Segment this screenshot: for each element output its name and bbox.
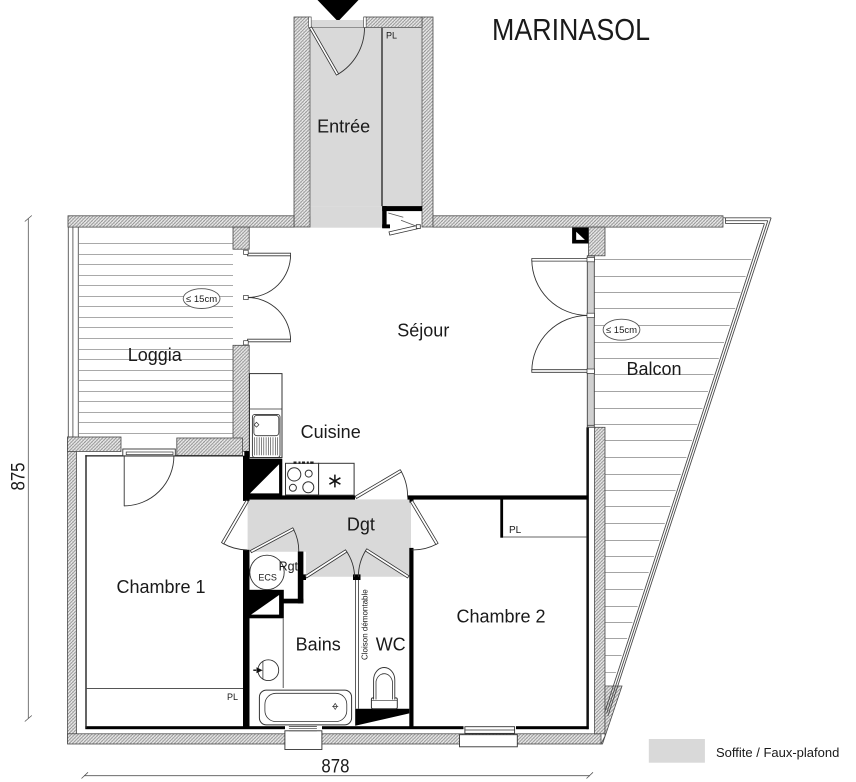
svg-text:Rgt: Rgt [279,560,299,574]
svg-text:MARINASOL: MARINASOL [492,13,650,47]
svg-text:Entrée: Entrée [317,117,370,137]
svg-text:Loggia: Loggia [128,345,183,365]
svg-text:WC: WC [376,635,406,655]
svg-text:PL: PL [509,525,522,536]
svg-text:Cloison démontable: Cloison démontable [361,589,370,660]
svg-text:ECS: ECS [258,573,277,583]
svg-text:Chambre 2: Chambre 2 [456,607,545,627]
svg-text:Soffite / Faux-plafond: Soffite / Faux-plafond [716,745,839,760]
svg-text:Dgt: Dgt [347,515,375,535]
svg-text:PL: PL [227,692,238,702]
svg-text:Séjour: Séjour [397,321,449,341]
svg-text:≤ 15cm: ≤ 15cm [186,294,217,305]
svg-text:Chambre 1: Chambre 1 [116,577,205,597]
svg-text:Cuisine: Cuisine [301,422,361,442]
svg-text:Balcon: Balcon [626,359,681,379]
svg-text:PL: PL [386,31,397,41]
svg-text:878: 878 [321,755,349,776]
svg-text:≤ 15cm: ≤ 15cm [606,325,637,336]
svg-text:875: 875 [7,463,28,491]
svg-text:Bains: Bains [296,635,341,655]
